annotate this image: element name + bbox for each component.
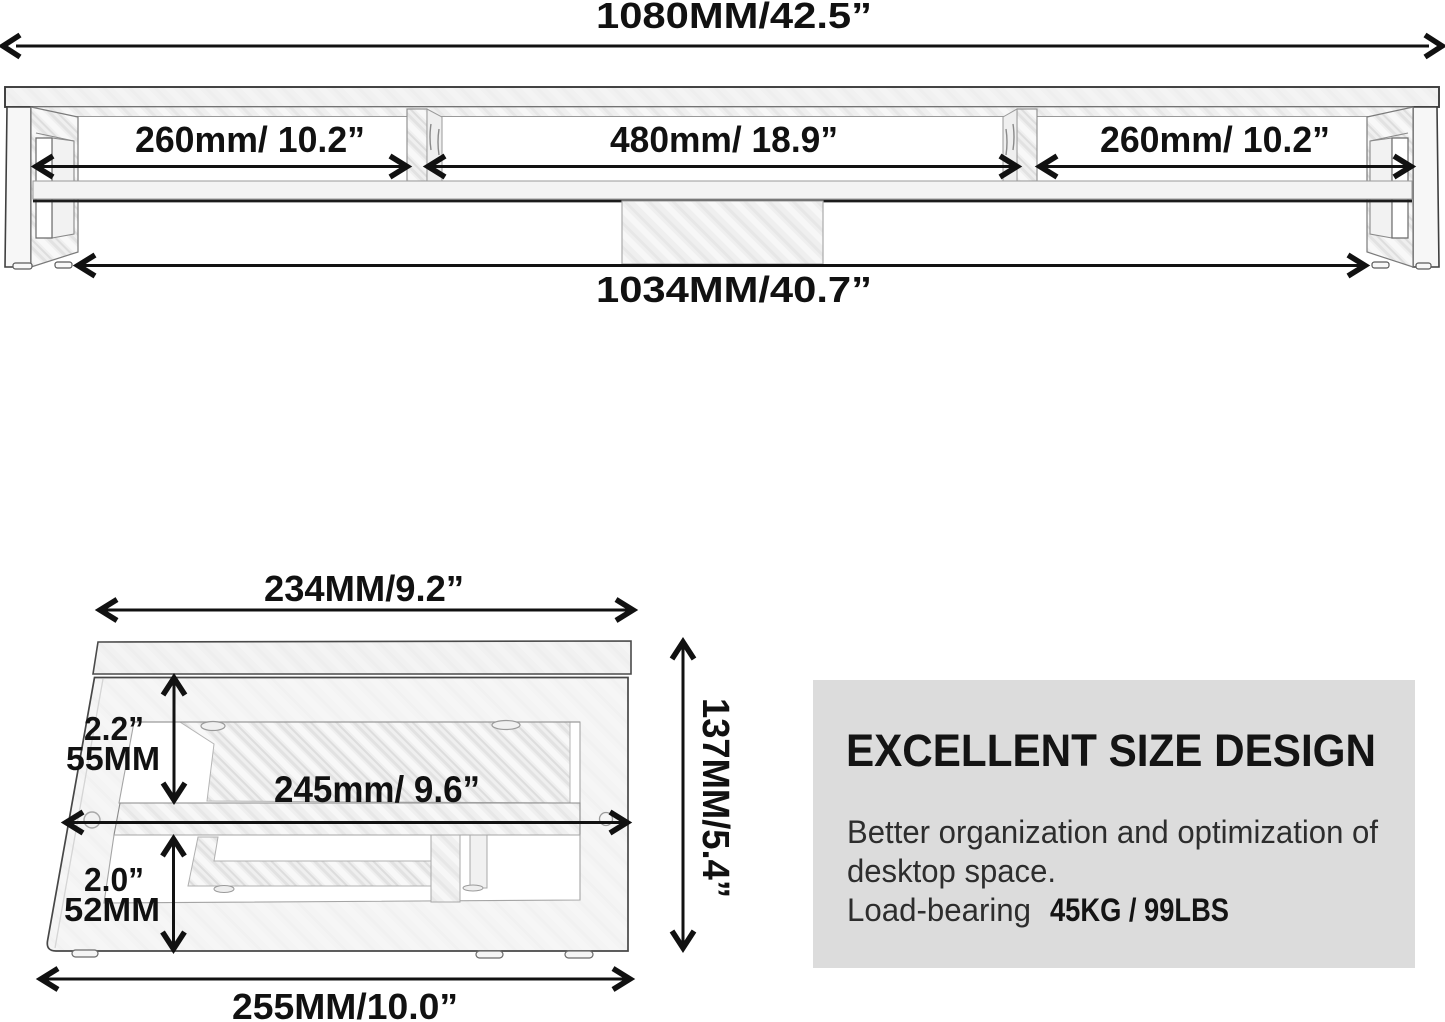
svg-text:260mm/ 10.2”: 260mm/ 10.2” [1100,119,1330,160]
svg-text:52MM: 52MM [64,891,160,928]
svg-text:255MM/10.0”: 255MM/10.0” [232,986,458,1022]
svg-text:1080MM/42.5”: 1080MM/42.5” [596,0,872,36]
svg-text:55MM: 55MM [66,740,160,777]
svg-text:desktop space.: desktop space. [847,853,1056,889]
svg-text:260mm/ 10.2”: 260mm/ 10.2” [135,119,365,160]
svg-text:Load-bearing: Load-bearing [847,892,1031,928]
svg-text:480mm/ 18.9”: 480mm/ 18.9” [610,119,838,160]
svg-text:234MM/9.2”: 234MM/9.2” [264,568,464,609]
svg-text:245mm/ 9.6”: 245mm/ 9.6” [274,769,480,810]
svg-text:1034MM/40.7”: 1034MM/40.7” [596,269,872,310]
svg-text:137MM/5.4”: 137MM/5.4” [694,698,736,898]
svg-text:Better organization and optimi: Better organization and optimization of [847,814,1378,850]
svg-text:45KG / 99LBS: 45KG / 99LBS [1050,892,1229,928]
svg-text:EXCELLENT SIZE DESIGN: EXCELLENT SIZE DESIGN [846,725,1376,776]
